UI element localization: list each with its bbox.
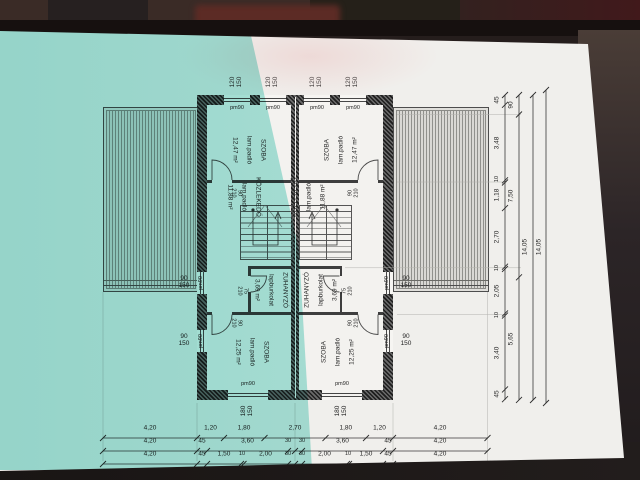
window-size-label: 90 150 [179,334,190,348]
dim-label: 45 [198,439,205,446]
dim-label: 5,65 [509,332,516,345]
dim-label: 2,05 [495,285,502,298]
dim-label: 4,20 [144,439,157,446]
parapet-label: pm90 [335,382,349,388]
room-finish: lam.padló [338,118,345,182]
dim-label: 4,20 [144,426,157,433]
parapet-label: pm90 [241,382,255,388]
dim-label: 45 [495,96,502,103]
door-size-label: 90 210 [348,318,359,327]
window-size-label: 120 150 [266,77,280,88]
window-size-label: 180 150 [241,406,255,417]
bezel-dark-patch [48,0,148,22]
dim-label: 1,20 [204,426,217,433]
dim-label: 2,70 [495,231,502,244]
room-name: SZOBA [321,320,328,384]
dim-label: 30 [285,439,291,445]
door-size-label: 75 210 [342,286,353,295]
window-size-label: 120 150 [230,77,244,88]
room-label-kozlekedo-left: KÖZLEKEDŐ lam.padló 11,88 m² [220,165,269,229]
dim-label: 45 [198,452,205,459]
parapet-label: pm90 [199,276,205,290]
room-name: KÖZLEKEDŐ [255,165,262,229]
room-area: 12,25 m² [349,320,356,384]
room-name: KÖZLEKEDŐ [292,165,299,229]
parapet-label: pm90 [346,106,360,112]
room-finish: lapburkolat [268,258,275,322]
door-size-label: 90 210 [230,318,241,327]
dim-label: 1,80 [339,426,352,433]
dim-label: 2,70 [289,426,302,433]
dim-label: 10 [495,265,501,271]
window-size-label: 120 150 [310,77,324,88]
room-finish: lam.padló [335,320,342,384]
dim-label: 2,00 [318,452,331,459]
window-size-label: 180 150 [335,406,349,417]
dim-label: 90 [509,101,516,108]
dim-label: 1,50 [218,452,231,459]
dim-label: 4,20 [434,452,447,459]
dim-label: 3,60 [336,439,349,446]
dim-label: 3,48 [495,136,502,149]
parapet-label: pm90 [199,334,205,348]
photo-of-monitor: SZOBA lam.padló 12,47 m² SZOBA lam.padló… [0,0,640,480]
floor-plan-page: SZOBA lam.padló 12,47 m² SZOBA lam.padló… [0,0,640,480]
room-name: ZUHANYZÓ [282,258,289,322]
dim-label: 10 [239,452,245,458]
room-name: SZOBA [263,320,270,384]
dim-label: 1,80 [238,426,251,433]
window-size-label: 120 150 [346,77,360,88]
door-size-label: 90 210 [348,188,359,197]
dim-label: 45 [384,452,391,459]
parapet-label: pm90 [385,276,391,290]
parapet-label: pm90 [385,334,391,348]
dim-label: 1,20 [373,426,386,433]
dim-label: 1,18 [495,189,502,202]
dim-total-label: 14,05 [523,239,530,255]
dim-label: 10 [495,176,501,182]
dim-label: 10 [345,452,351,458]
window-size-label: 90 150 [179,276,190,290]
dim-label: 4,20 [144,452,157,459]
room-label-szoba-bottom-right: SZOBA lam.padló 12,25 m² [314,320,363,384]
dim-label: 45 [495,391,502,398]
dim-label: 3,60 [241,439,254,446]
room-area: 3,69 m² [332,258,339,322]
parapet-label: pm90 [310,106,324,112]
window-size-label: 90 150 [401,334,412,348]
room-label-szoba-bottom-left: SZOBA lam.padló 12,25 m² [228,320,277,384]
dim-total-label: 14,05 [537,239,544,255]
room-label-zuhanyzo-right: ZUHANYZÓ lapburkolat 3,69 m² [297,258,346,322]
room-area: 3,69 m² [254,258,261,322]
dim-label: 3,40 [495,346,502,359]
dim-label: 4,20 [434,426,447,433]
room-finish: lapburkolat [318,258,325,322]
dim-label: 2,00 [259,452,272,459]
room-area: 11,88 m² [320,165,327,229]
dim-label: 45 [384,439,391,446]
plan-linework [0,0,640,480]
parapet-label: pm90 [230,106,244,112]
dim-label: 30 [299,439,305,445]
room-label-zuhanyzo-left: ZUHANYZÓ lapburkolat 3,69 m² [247,258,296,322]
window-size-label: 90 150 [401,276,412,290]
dim-label: 30 [299,452,305,458]
dim-label: 4,20 [434,439,447,446]
room-area: 12,25 m² [235,320,242,384]
room-area: 12,47 m² [352,118,359,182]
room-name: ZUHANYZÓ [304,258,311,322]
room-finish: lam.padló [306,165,313,229]
dim-label: 1,50 [360,452,373,459]
dim-label: 7,50 [509,190,516,203]
room-finish: lam.padló [249,320,256,384]
dim-label: 30 [285,452,291,458]
door-size-label: 75 210 [236,286,247,295]
door-size-label: 90 210 [230,188,241,197]
parapet-label: pm90 [266,106,280,112]
dim-label: 10 [495,311,501,317]
room-label-kozlekedo-right: KÖZLEKEDŐ lam.padló 11,88 m² [285,165,334,229]
